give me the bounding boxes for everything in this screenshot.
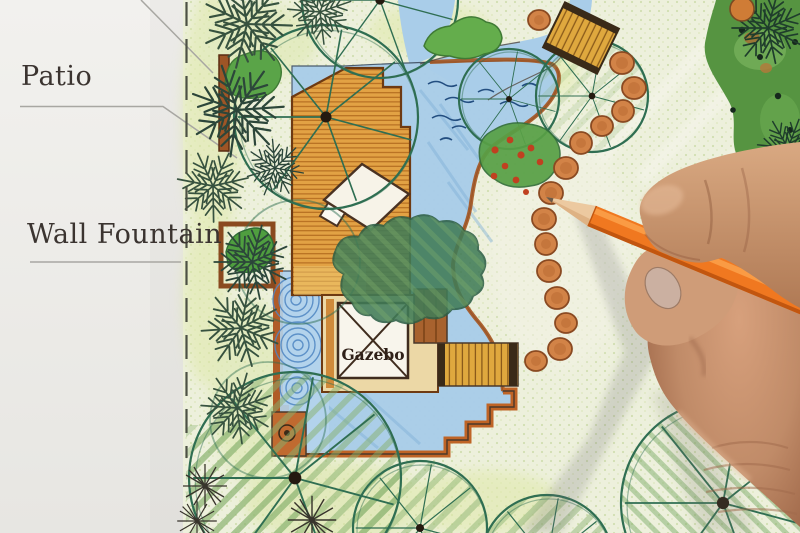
gazebo-label: Gazebo	[341, 345, 404, 364]
round-shrub	[730, 0, 754, 21]
landscape-plan-photo: Gazebo	[0, 0, 800, 533]
wall-fountain-label: Wall Fountain	[27, 219, 222, 250]
patio-label: Patio	[21, 61, 92, 92]
boardwalk	[438, 343, 518, 386]
